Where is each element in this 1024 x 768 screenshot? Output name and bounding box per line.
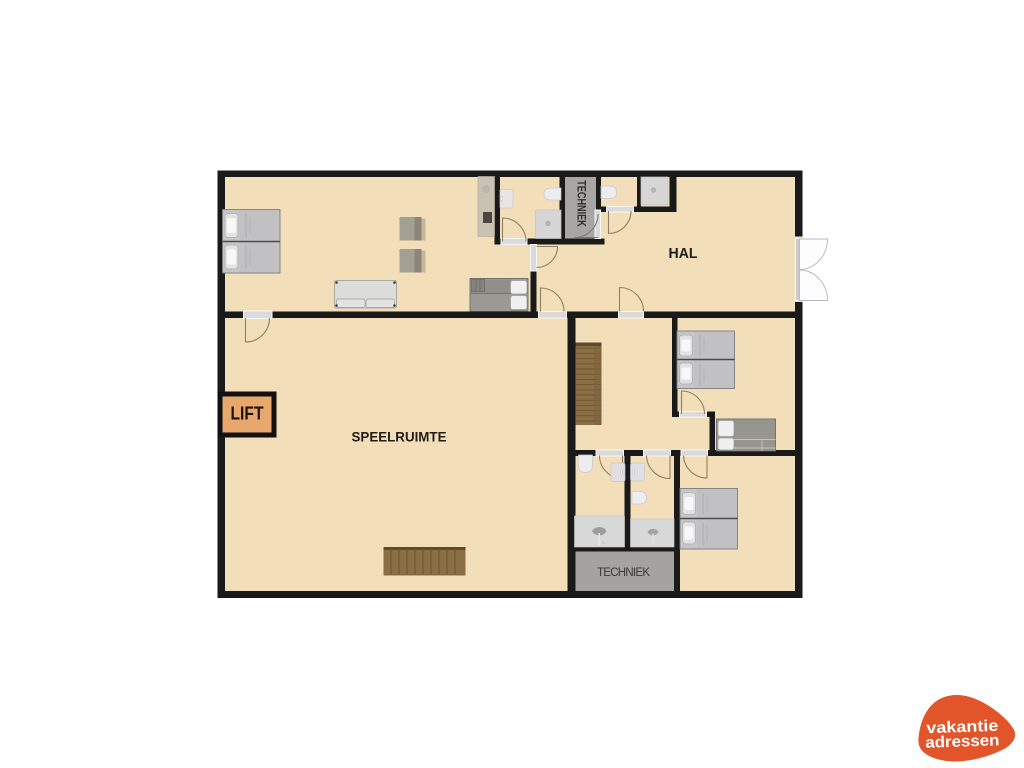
svg-text:LIFT: LIFT [231, 404, 264, 424]
svg-text:TECHNIEK: TECHNIEK [575, 180, 589, 227]
svg-text:TECHNIEK: TECHNIEK [597, 567, 650, 579]
svg-text:SPEELRUIMTE: SPEELRUIMTE [352, 429, 447, 445]
svg-text:HAL: HAL [669, 245, 698, 262]
svg-text:adressen: adressen [925, 732, 1000, 752]
